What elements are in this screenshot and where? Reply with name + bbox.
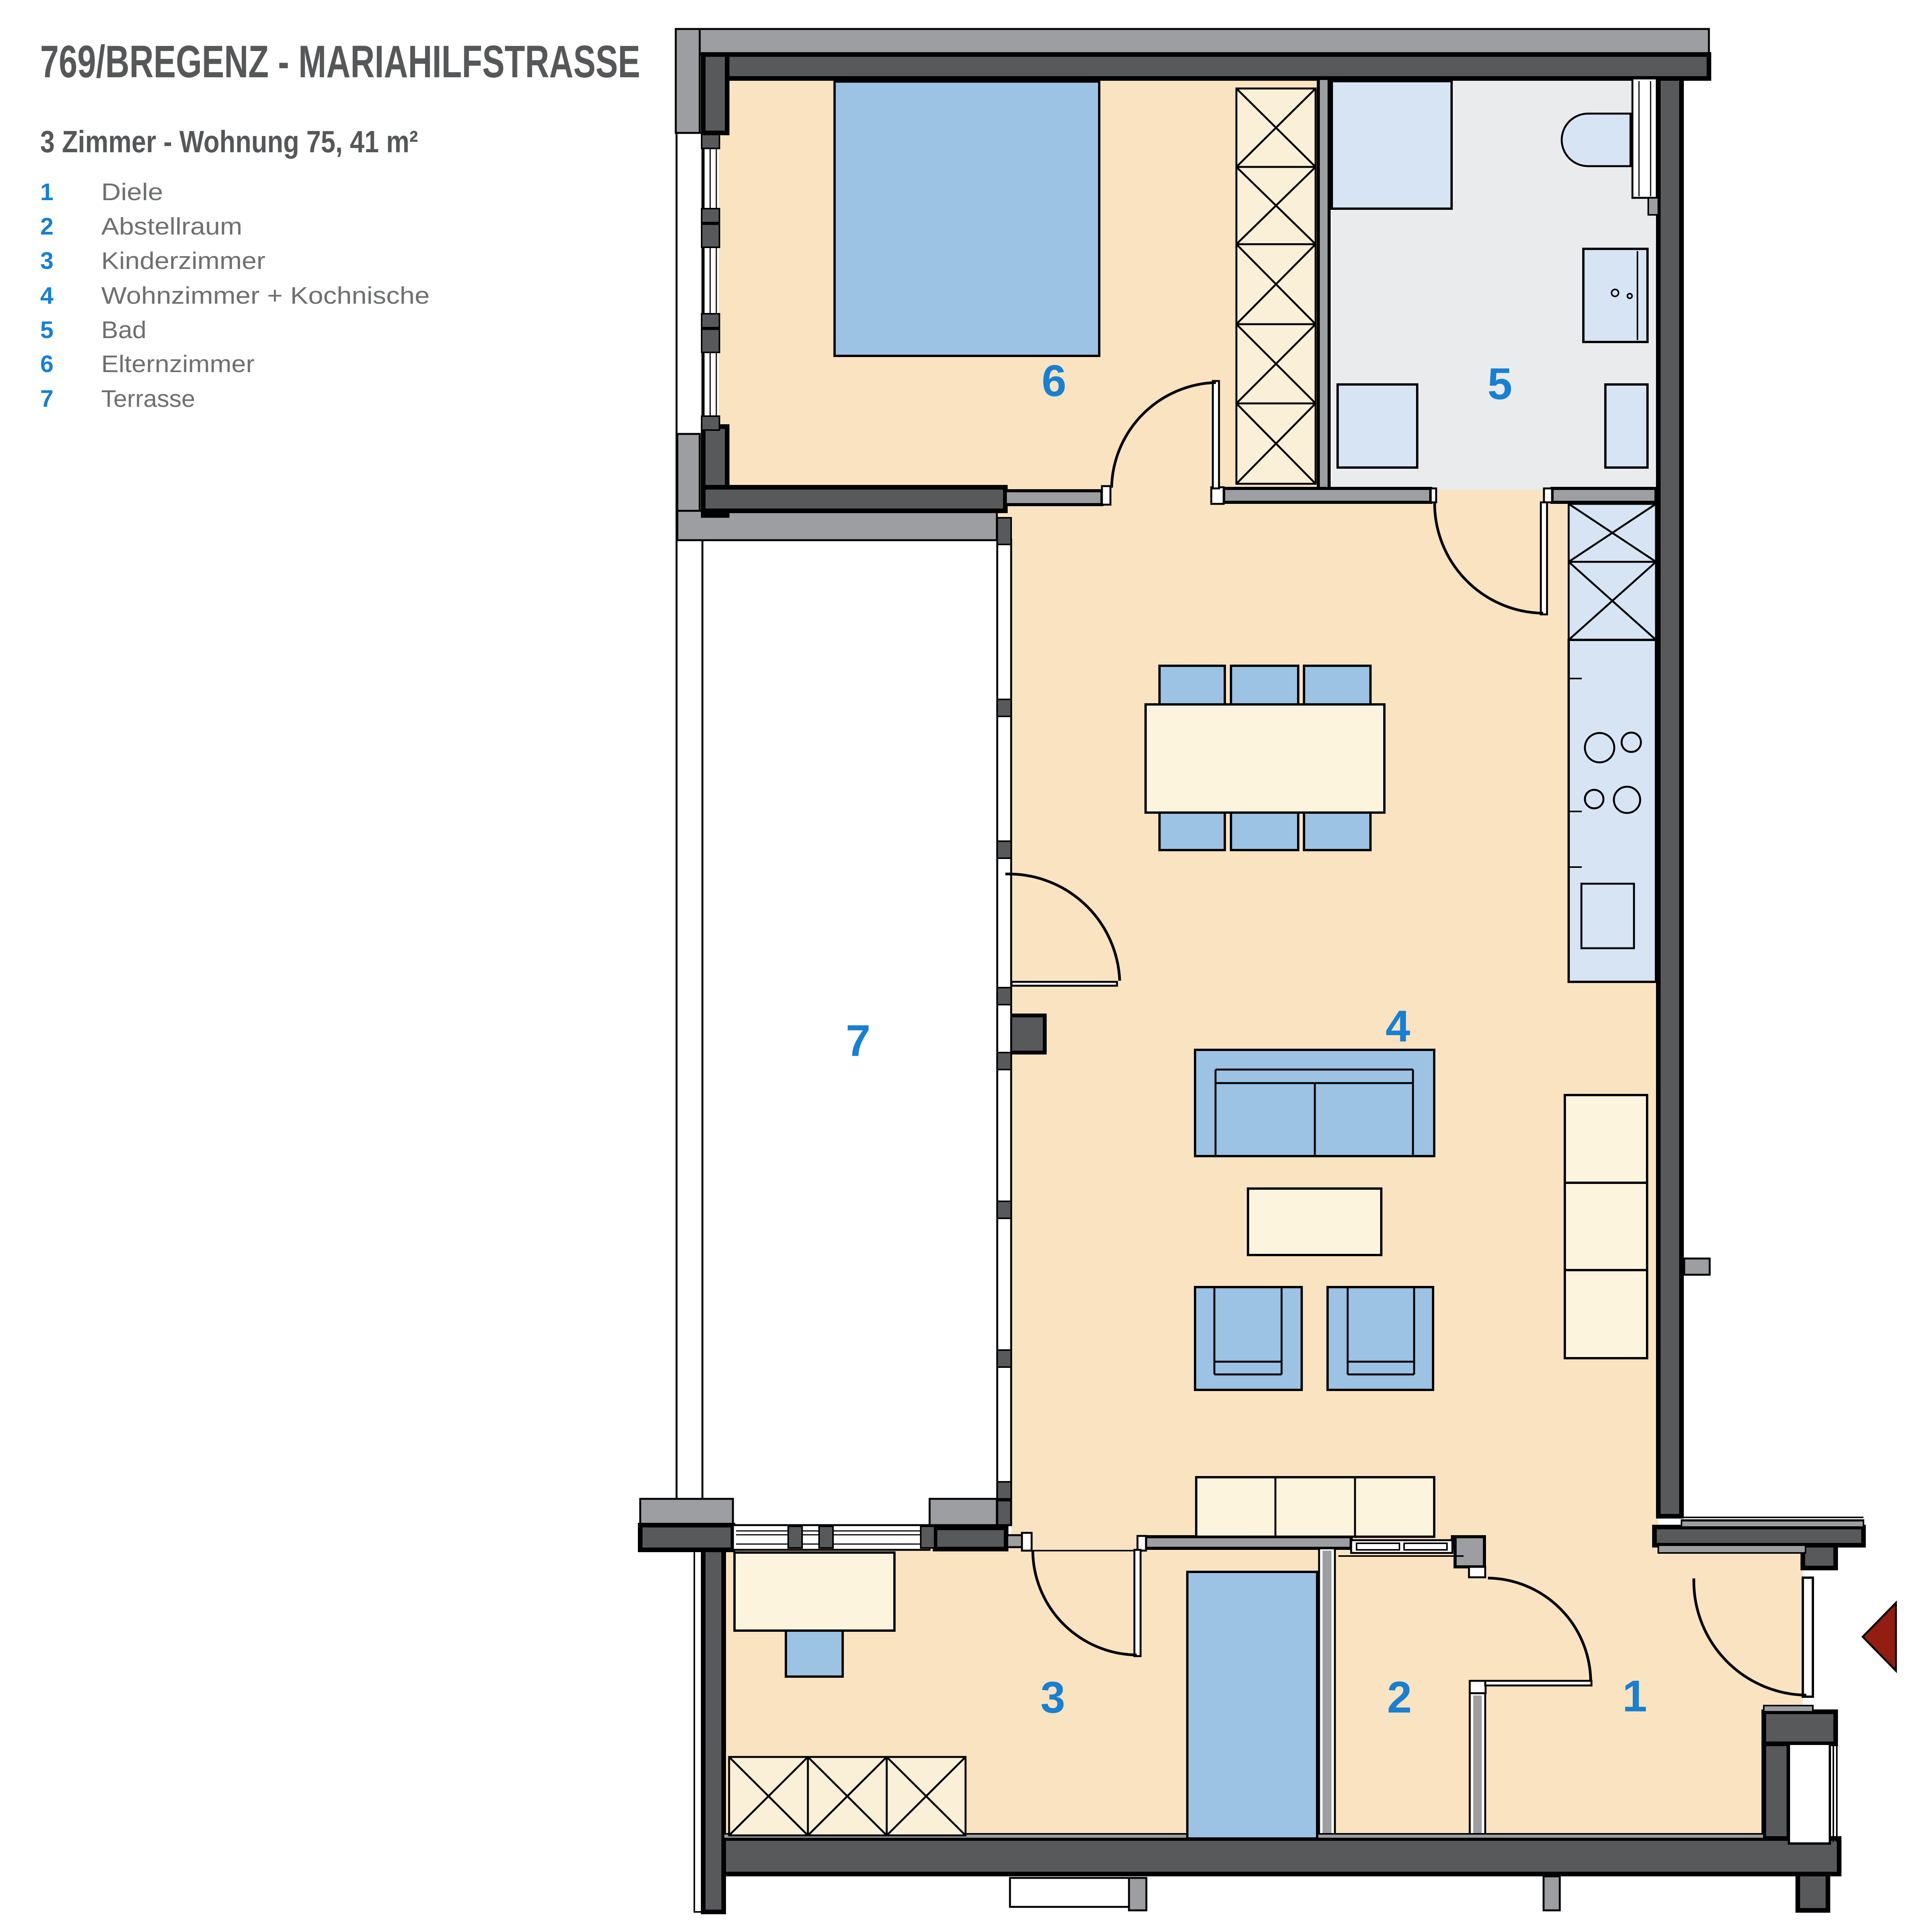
svg-text:4: 4: [1386, 1002, 1410, 1051]
svg-text:7: 7: [846, 1016, 870, 1066]
svg-text:1: 1: [1622, 1672, 1647, 1721]
svg-text:6: 6: [40, 351, 53, 378]
svg-text:3: 3: [1041, 1673, 1065, 1722]
svg-text:6: 6: [1042, 356, 1066, 406]
svg-text:Wohnzimmer + Kochnische: Wohnzimmer + Kochnische: [101, 282, 430, 309]
svg-text:5: 5: [1488, 359, 1512, 409]
svg-text:2: 2: [1387, 1673, 1412, 1722]
svg-text:Kinderzimmer: Kinderzimmer: [101, 248, 265, 274]
svg-text:3 Zimmer - Wohnung 75, 41 m²: 3 Zimmer - Wohnung 75, 41 m²: [40, 124, 418, 159]
svg-text:Diele: Diele: [101, 179, 163, 206]
svg-text:7: 7: [40, 386, 53, 412]
svg-text:Elternzimmer: Elternzimmer: [101, 351, 255, 378]
svg-text:Abstellraum: Abstellraum: [101, 213, 242, 240]
svg-text:3: 3: [40, 248, 53, 274]
svg-text:Bad: Bad: [101, 317, 146, 344]
svg-text:4: 4: [40, 282, 54, 309]
svg-text:769/BREGENZ - MARIAHILFSTRASSE: 769/BREGENZ - MARIAHILFSTRASSE: [40, 36, 640, 87]
svg-text:Terrasse: Terrasse: [101, 386, 195, 412]
svg-text:2: 2: [40, 213, 53, 240]
svg-text:5: 5: [40, 317, 53, 344]
svg-text:1: 1: [40, 179, 53, 206]
